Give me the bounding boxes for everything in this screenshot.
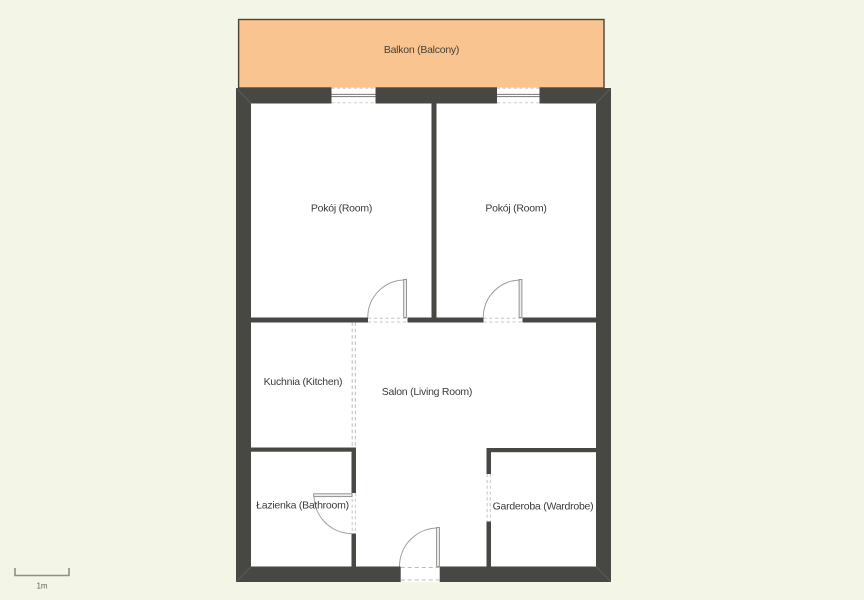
svg-text:Garderoba (Wardrobe): Garderoba (Wardrobe) [493,501,594,513]
svg-text:Balkon (Balcony): Balkon (Balcony) [384,44,459,56]
svg-text:1m: 1m [36,582,47,591]
svg-text:Salon (Living Room): Salon (Living Room) [382,386,472,398]
svg-text:Łazienka (Bathroom): Łazienka (Bathroom) [256,500,349,512]
svg-text:Kuchnia (Kitchen): Kuchnia (Kitchen) [264,376,343,388]
svg-text:Pokój (Room): Pokój (Room) [311,203,372,215]
svg-text:Pokój (Room): Pokój (Room) [485,203,546,215]
